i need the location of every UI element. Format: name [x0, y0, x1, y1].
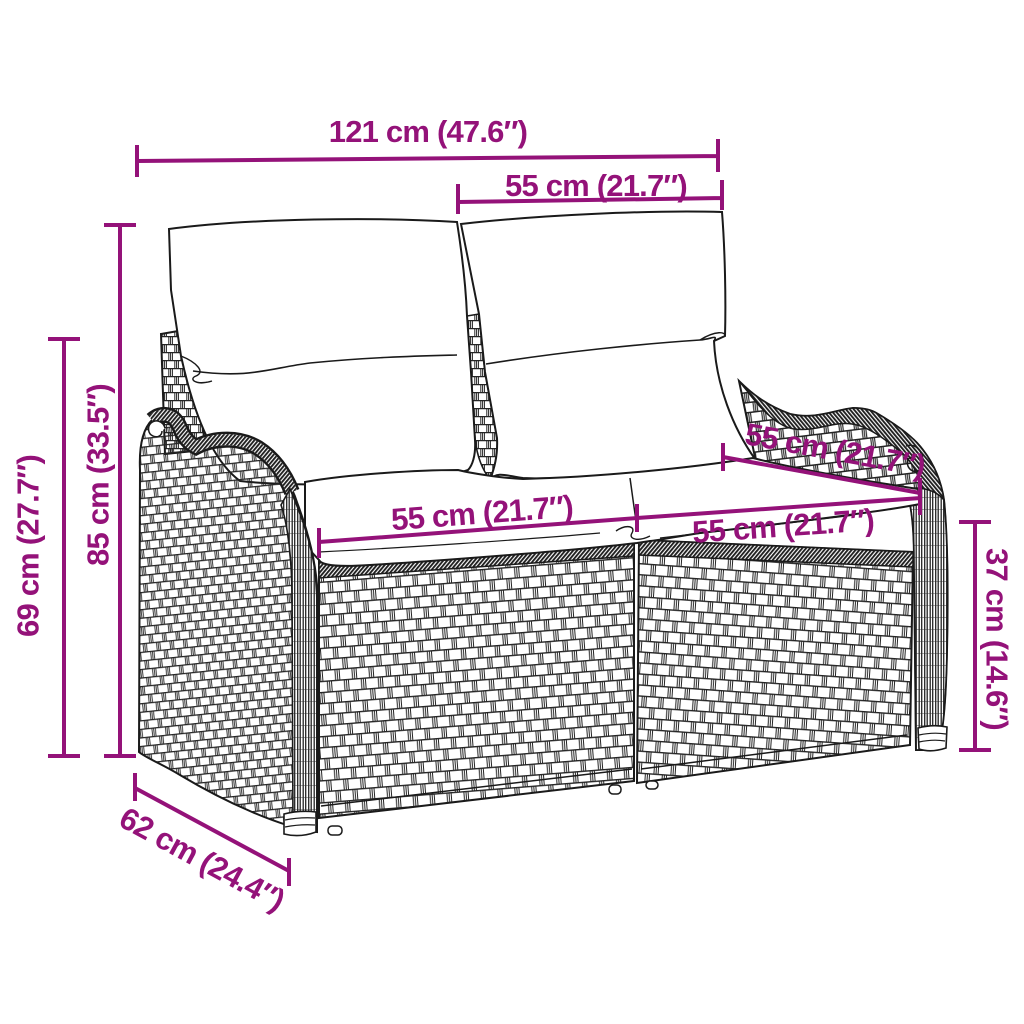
svg-text:55 cm (21.7″): 55 cm (21.7″) [505, 168, 687, 203]
svg-text:37 cm (14.6″): 37 cm (14.6″) [980, 548, 1015, 730]
svg-text:69 cm (27.7″): 69 cm (27.7″) [11, 455, 46, 637]
svg-text:85 cm (33.5″): 85 cm (33.5″) [81, 384, 116, 566]
svg-text:121 cm (47.6″): 121 cm (47.6″) [329, 114, 527, 149]
